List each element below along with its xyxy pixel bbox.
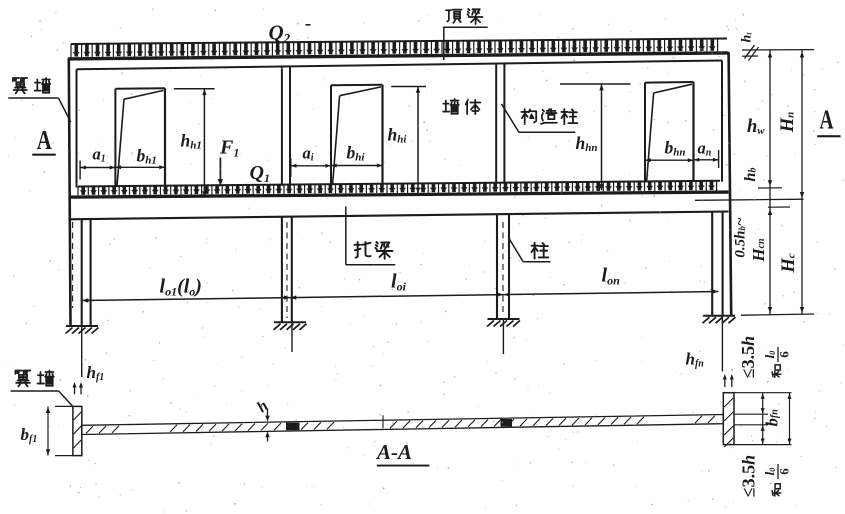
svg-text:≤3.5h: ≤3.5h bbox=[739, 455, 759, 497]
svg-text:≤3.5h: ≤3.5h bbox=[738, 336, 758, 378]
svg-text:A: A bbox=[820, 105, 834, 135]
svg-text:0.5hb~: 0.5hb~ bbox=[732, 217, 748, 258]
svg-text:6: 6 bbox=[776, 351, 791, 358]
svg-text:6: 6 bbox=[776, 468, 791, 475]
